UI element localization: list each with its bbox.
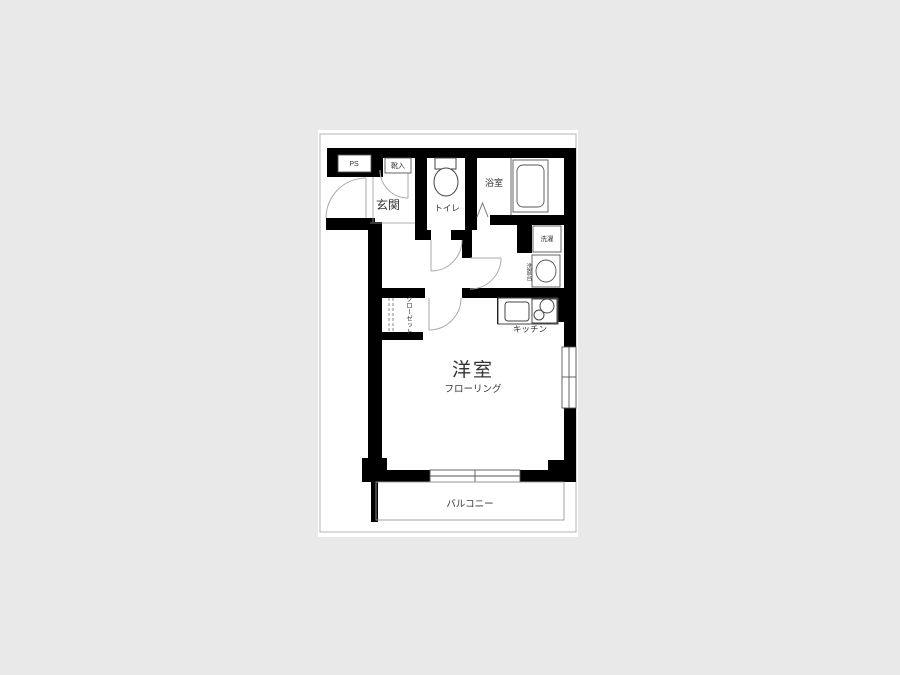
label-kitchen: キッチン	[513, 324, 547, 334]
closet	[389, 298, 393, 332]
toilet-icon	[434, 158, 458, 196]
label-washstand: 洗面台	[525, 262, 532, 282]
toilet-door	[431, 240, 462, 271]
label-western-room: 洋室	[452, 359, 494, 381]
bathtub-icon	[511, 158, 548, 215]
room-door	[429, 298, 461, 330]
kitchen-counter	[498, 298, 558, 324]
label-bathroom: 浴室	[485, 177, 503, 188]
washbasin-icon	[532, 255, 560, 287]
south-window	[430, 470, 520, 482]
washroom-door	[470, 258, 501, 289]
label-laundry: 洗濯	[541, 234, 555, 243]
page: { "page": { "background_color": "#e9e9e9…	[0, 0, 900, 675]
label-shoe-box: 靴入	[391, 161, 405, 170]
east-window	[562, 347, 576, 408]
shoe-box-door	[380, 170, 408, 198]
label-pipe-space: PS	[349, 161, 359, 168]
label-closet: クローゼット	[405, 295, 413, 335]
label-balcony: バルコニー	[446, 499, 493, 510]
sink-icon	[505, 302, 529, 321]
floorplan-canvas: PS 靴入 玄関 トイレ 浴室 洗濯 洗面台 キッチン クローゼット 洋室 フロ…	[318, 130, 578, 537]
label-toilet: トイレ	[434, 203, 460, 213]
label-entrance: 玄関	[376, 197, 400, 212]
entrance-door	[326, 178, 366, 218]
label-flooring: フローリング	[444, 383, 502, 395]
floorplan-svg: PS 靴入 玄関 トイレ 浴室 洗濯 洗面台 キッチン クローゼット 洋室 フロ…	[318, 130, 578, 537]
bathroom-folding-door-icon	[477, 203, 488, 217]
